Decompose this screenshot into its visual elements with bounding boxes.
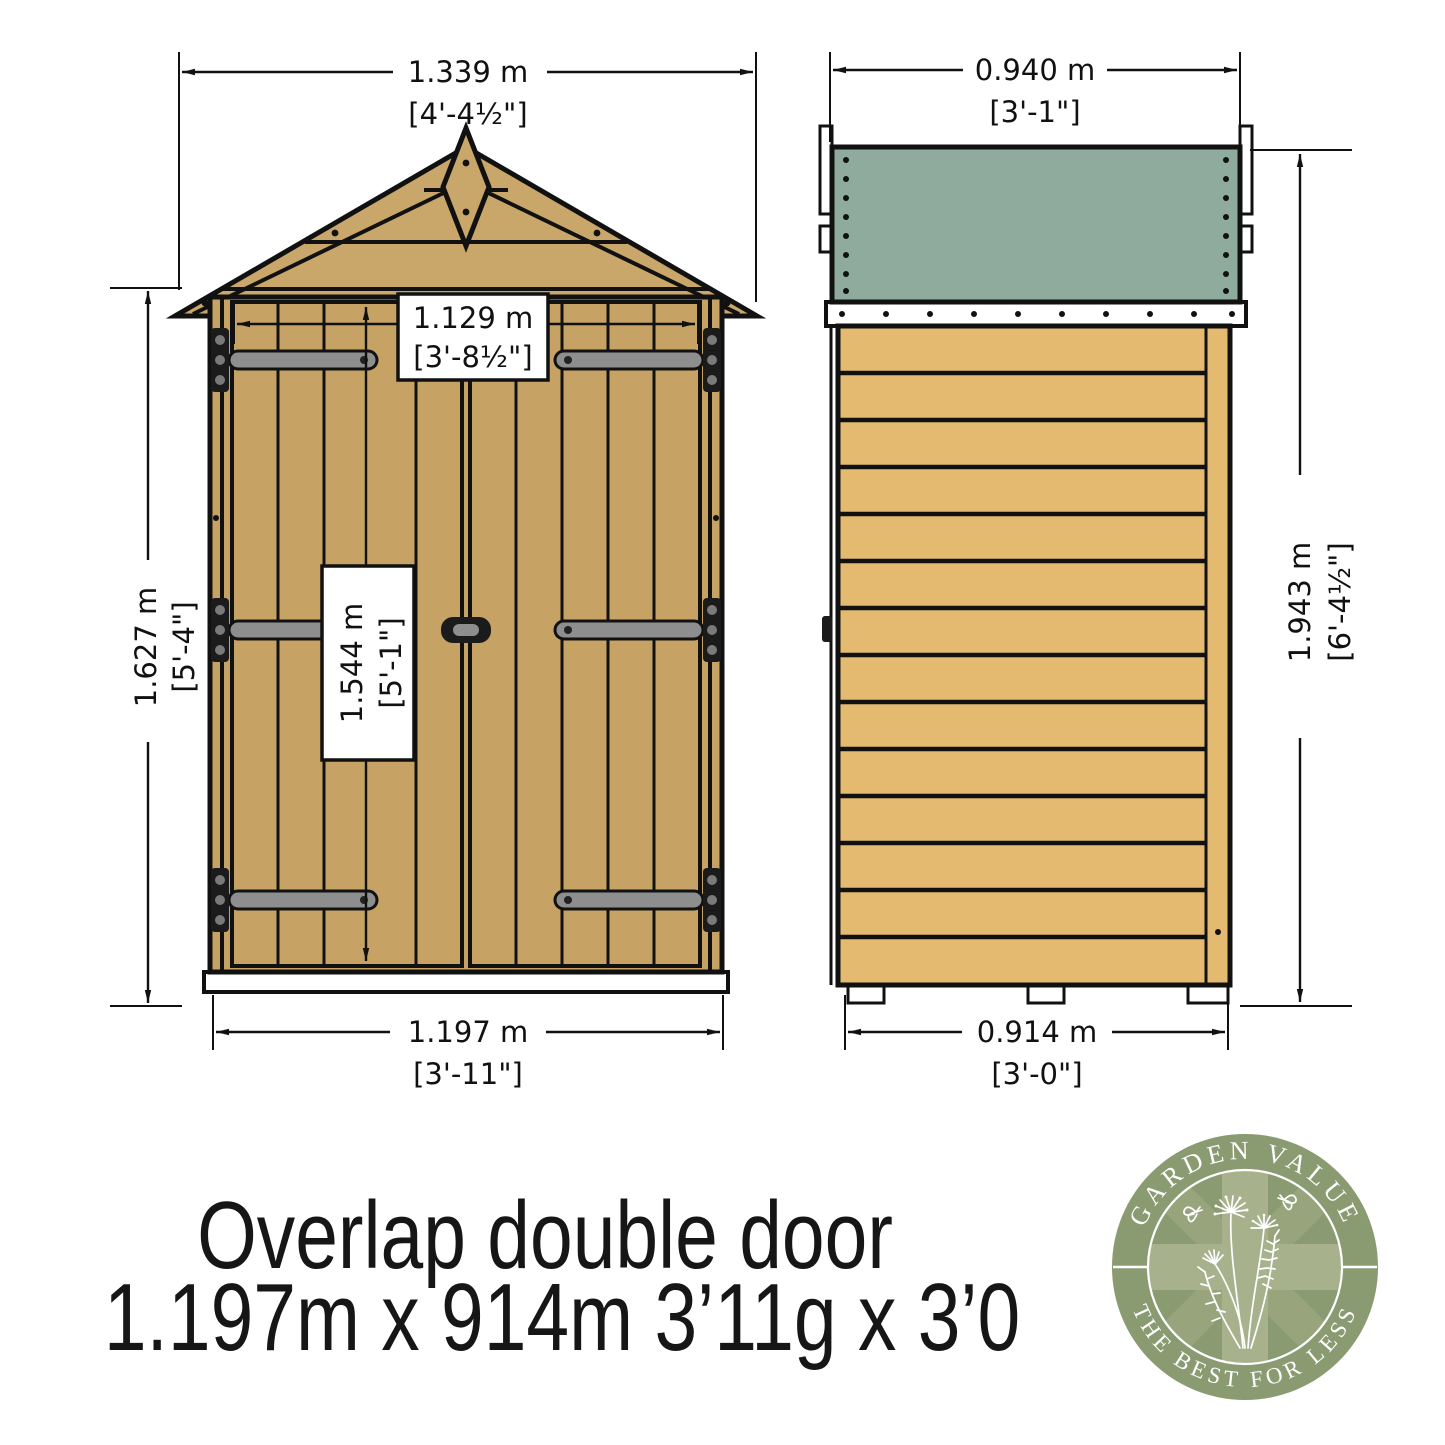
roof-felt-panel [826,147,1246,326]
dim-wall-height-metric: 1.627 m [129,587,163,708]
dim-side-overall-height: 1.943 m [6'-4½"] [1240,150,1357,1006]
dim-front-base-width-metric: 1.197 m [408,1015,529,1049]
floor-feet [848,985,1228,1003]
garden-value-logo: GARDEN VALUE THE BEST FOR LESS [1112,1134,1378,1400]
dim-door-width-metric: 1.129 m [413,301,534,335]
front-elevation: 1.339 m [4'-4½"] 1.129 m [3'-8½"] 1.627 … [110,52,757,1091]
apex-roof [175,128,757,316]
dim-side-overall-depth: 0.940 m [3'-1"] [830,52,1240,142]
dim-front-base-width-imperial: [3'-11"] [413,1057,523,1091]
dim-wall-height: 1.627 m [5'-4"] [110,288,201,1006]
dim-side-base-depth-metric: 0.914 m [977,1015,1098,1049]
product-title-line2: 1.197m x 914m 3’11g x 3’0 [104,1264,1020,1371]
dim-side-base-depth: 0.914 m [3'-0"] [845,995,1228,1091]
dim-door-height-metric: 1.544 m [335,603,369,724]
front-wall [204,297,728,992]
dim-door-width-imperial: [3'-8½"] [413,340,532,374]
latch-profile [822,616,832,642]
dim-front-overall-width-imperial: [4'-4½"] [408,97,527,131]
side-elevation: 0.940 m [3'-1"] 1.943 m [6'-4½"] 0.914 m… [820,52,1357,1091]
dim-front-base-width: 1.197 m [3'-11"] [213,995,723,1091]
dim-side-overall-height-metric: 1.943 m [1283,542,1317,663]
door-latch [441,617,491,643]
fascia-nails [839,311,1235,317]
dim-side-overall-depth-imperial: [3'-1"] [989,95,1080,129]
product-title: Overlap double door 1.197m x 914m 3’11g … [104,1182,1020,1371]
shed-technical-drawing: 1.339 m [4'-4½"] 1.129 m [3'-8½"] 1.627 … [0,0,1445,1445]
floor-bearer [204,972,728,992]
dim-side-base-depth-imperial: [3'-0"] [991,1057,1082,1091]
dim-side-overall-depth-metric: 0.940 m [975,53,1096,87]
dim-wall-height-imperial: [5'-4"] [167,601,201,692]
dim-door-height-imperial: [5'-1"] [374,617,408,708]
side-wall [822,326,1230,985]
dim-side-overall-height-imperial: [6'-4½"] [1323,542,1357,661]
dim-front-overall-width-metric: 1.339 m [408,55,529,89]
